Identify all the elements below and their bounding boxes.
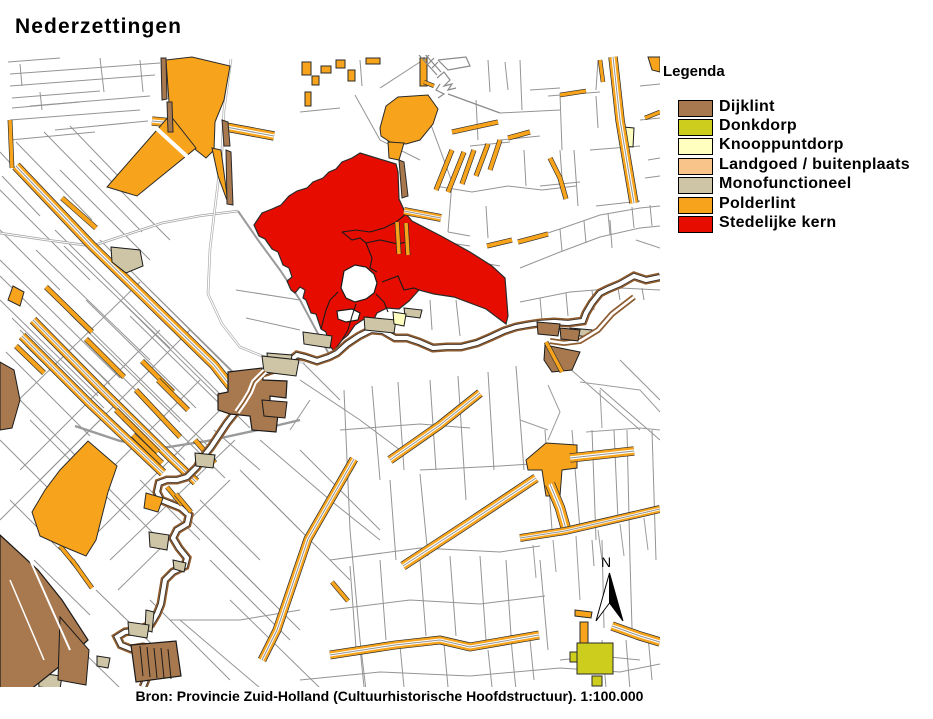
- svg-text:N: N: [601, 554, 611, 570]
